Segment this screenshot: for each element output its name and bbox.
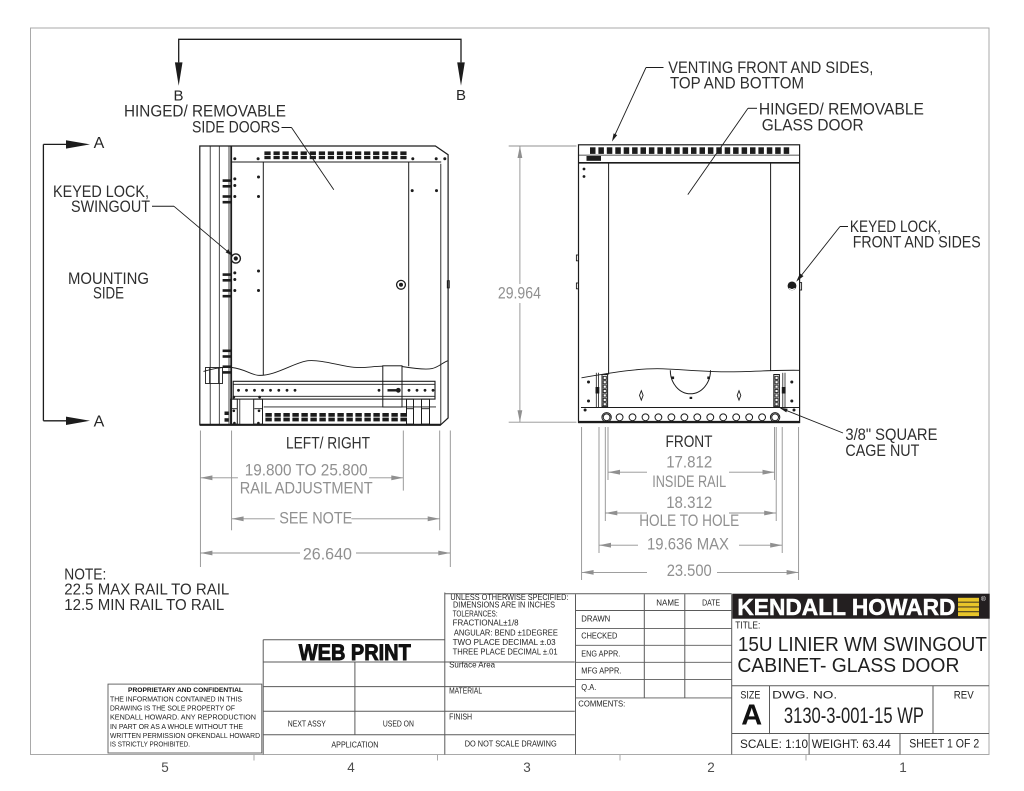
svg-text:CAGE NUT: CAGE NUT	[845, 442, 919, 460]
svg-text:IS STRICTLY PROHIBITED.: IS STRICTLY PROHIBITED.	[110, 739, 190, 748]
svg-text:1: 1	[899, 760, 907, 775]
svg-text:17.812: 17.812	[666, 453, 712, 472]
svg-text:KENDALL HOWARD. ANY REPRODUCT: KENDALL HOWARD. ANY REPRODUCTION	[110, 713, 256, 722]
svg-text:HOLE TO HOLE: HOLE TO HOLE	[639, 511, 739, 530]
svg-text:INSIDE RAIL: INSIDE RAIL	[652, 472, 726, 491]
svg-text:26.640: 26.640	[303, 544, 352, 563]
svg-text:®: ®	[981, 595, 986, 603]
svg-text:SWINGOUT: SWINGOUT	[71, 198, 150, 216]
svg-text:A: A	[741, 700, 762, 732]
svg-text:FRONT AND SIDES: FRONT AND SIDES	[853, 233, 981, 251]
svg-text:ENG APPR.: ENG APPR.	[581, 649, 620, 659]
svg-text:FRONT: FRONT	[666, 432, 713, 451]
svg-text:REV: REV	[954, 689, 975, 701]
svg-text:3130-3-001-15 WP: 3130-3-001-15 WP	[784, 703, 924, 728]
svg-text:RAIL ADJUSTMENT: RAIL ADJUSTMENT	[240, 479, 373, 498]
svg-text:29.964: 29.964	[498, 283, 541, 302]
svg-text:19.800 TO 25.800: 19.800 TO 25.800	[245, 461, 368, 480]
svg-text:APPLICATION: APPLICATION	[331, 740, 378, 750]
svg-text:USED ON: USED ON	[383, 719, 414, 729]
svg-text:23.500: 23.500	[667, 561, 712, 580]
svg-text:FINISH: FINISH	[449, 711, 472, 721]
svg-text:PROPRIETARY AND CONFIDENTIAL: PROPRIETARY AND CONFIDENTIAL	[128, 687, 243, 694]
svg-text:Surface Area: Surface Area	[449, 661, 496, 670]
svg-text:SHEET 1 OF 2: SHEET 1 OF 2	[909, 736, 979, 750]
svg-text:SEE NOTE: SEE NOTE	[279, 509, 352, 528]
svg-text:NEXT ASSY: NEXT ASSY	[288, 719, 326, 729]
svg-text:SCALE: 1:10: SCALE: 1:10	[740, 737, 808, 751]
svg-text:DATE: DATE	[702, 598, 720, 607]
svg-text:12.5 MIN RAIL TO RAIL: 12.5 MIN RAIL TO RAIL	[64, 597, 224, 614]
svg-text:5: 5	[161, 760, 169, 775]
svg-text:GLASS DOOR: GLASS DOOR	[762, 117, 864, 135]
svg-text:DWG. NO.: DWG. NO.	[772, 689, 837, 701]
svg-text:B: B	[456, 87, 466, 104]
svg-text:COMMENTS:: COMMENTS:	[578, 699, 625, 709]
svg-text:CHECKED: CHECKED	[581, 631, 617, 641]
svg-text:DRAWN: DRAWN	[581, 614, 610, 624]
svg-text:A: A	[94, 413, 105, 430]
svg-text:TITLE:: TITLE:	[735, 621, 760, 632]
svg-text:FRACTIONAL±1/8: FRACTIONAL±1/8	[453, 617, 519, 627]
svg-text:15U LINIER WM SWINGOUT: 15U LINIER WM SWINGOUT	[738, 633, 987, 656]
svg-text:IN PART OR AS A WHOLE WITHOUT: IN PART OR AS A WHOLE WITHOUT THE	[110, 722, 243, 731]
svg-text:CABINET- GLASS DOOR: CABINET- GLASS DOOR	[737, 654, 959, 677]
svg-text:18.312: 18.312	[666, 493, 712, 512]
svg-text:ANGULAR: BEND ±1DEGREE: ANGULAR: BEND ±1DEGREE	[454, 627, 558, 637]
svg-text:A: A	[94, 135, 105, 152]
svg-text:SIDE: SIDE	[93, 284, 124, 302]
svg-text:MFG APPR.: MFG APPR.	[581, 665, 621, 675]
svg-text:MATERIAL: MATERIAL	[449, 686, 482, 696]
svg-text:DRAWING IS THE SOLE PROPERTY O: DRAWING IS THE SOLE PROPERTY OF	[110, 703, 236, 712]
svg-text:3: 3	[523, 760, 531, 775]
svg-text:LEFT/ RIGHT: LEFT/ RIGHT	[286, 434, 370, 453]
svg-text:NAME: NAME	[656, 598, 679, 607]
svg-text:2: 2	[707, 760, 715, 775]
svg-text:Q.A.: Q.A.	[581, 682, 596, 692]
svg-text:SIDE DOORS: SIDE DOORS	[192, 119, 280, 137]
svg-text:WEB PRINT: WEB PRINT	[299, 640, 411, 665]
svg-text:DO NOT SCALE DRAWING: DO NOT SCALE DRAWING	[465, 738, 557, 748]
svg-text:THE INFORMATION CONTAINED IN T: THE INFORMATION CONTAINED IN THIS	[110, 695, 242, 704]
svg-text:4: 4	[347, 760, 355, 775]
svg-text:THREE PLACE DECIMAL ±.01: THREE PLACE DECIMAL ±.01	[453, 646, 558, 656]
svg-text:19.636 MAX: 19.636 MAX	[647, 535, 729, 554]
svg-text:KENDALL HOWARD: KENDALL HOWARD	[737, 594, 955, 620]
svg-text:WEIGHT: 63.44: WEIGHT: 63.44	[812, 737, 891, 751]
svg-text:TOP AND BOTTOM: TOP AND BOTTOM	[670, 74, 804, 92]
